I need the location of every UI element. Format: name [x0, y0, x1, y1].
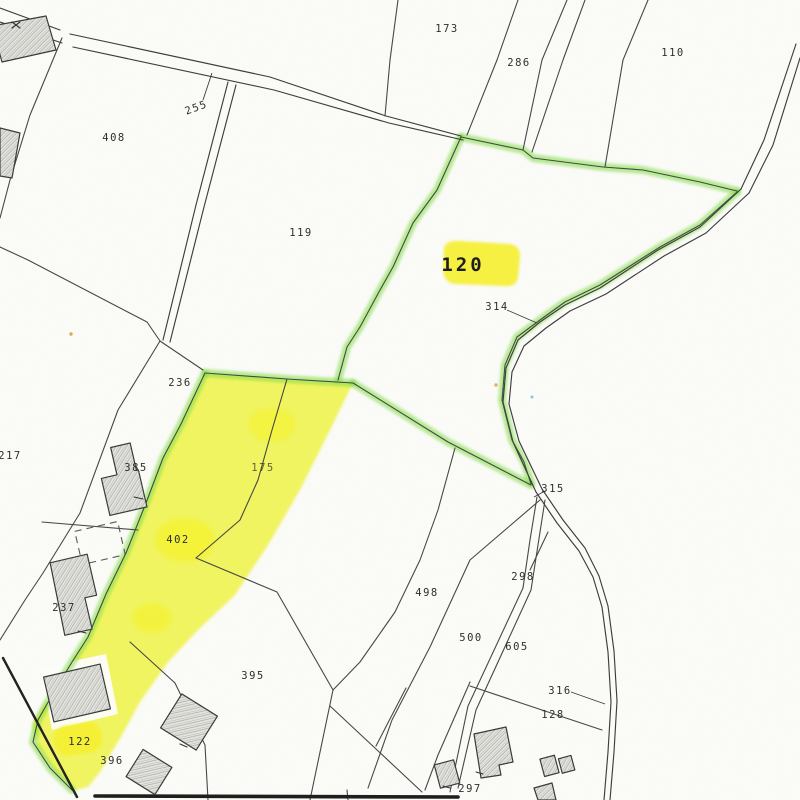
- artifact-dot: [494, 383, 497, 386]
- parcel-label-297: 297: [458, 783, 481, 795]
- parcel-label-385: 385: [124, 462, 147, 474]
- parcel-label-395: 395: [241, 670, 264, 682]
- parcel-label-315: 315: [541, 483, 564, 495]
- parcel-label-128: 128: [541, 709, 564, 721]
- yellow-deep-spot: [132, 603, 172, 633]
- parcel-label-173: 173: [435, 23, 458, 35]
- parcel-label-110: 110: [661, 47, 684, 59]
- parcel-label-237: 237: [52, 602, 75, 614]
- parcel-label-314: 314: [485, 301, 508, 313]
- parcel-label-396: 396: [100, 755, 123, 767]
- parcel-label-402: 402: [166, 534, 189, 546]
- parcel-label-298: 298: [511, 571, 534, 583]
- parcel-label-119: 119: [289, 227, 312, 239]
- parcel-label-175: 175: [251, 462, 274, 474]
- parcel-label-286: 286: [507, 57, 530, 69]
- parcel-label-498: 498: [415, 587, 438, 599]
- yellow-deep-spot: [248, 408, 296, 442]
- parcel-label-122: 122: [68, 736, 91, 748]
- parcel-label-120: 120: [441, 254, 484, 276]
- parcel-label-500: 500: [459, 632, 482, 644]
- cadastral-map-scan: 173 286 110 255 408 119 120 314 236 217 …: [0, 0, 800, 800]
- parcel-label-236: 236: [168, 377, 191, 389]
- artifact-dot: [531, 396, 534, 399]
- scan-edge-line: [95, 796, 458, 797]
- parcel-label-316: 316: [548, 685, 571, 697]
- map-canvas: 173 286 110 255 408 119 120 314 236 217 …: [0, 0, 800, 800]
- parcel-label-605: 605: [505, 641, 528, 653]
- artifact-dot: [69, 332, 72, 335]
- parcel-label-217: 217: [0, 450, 22, 462]
- parcel-label-408: 408: [102, 132, 125, 144]
